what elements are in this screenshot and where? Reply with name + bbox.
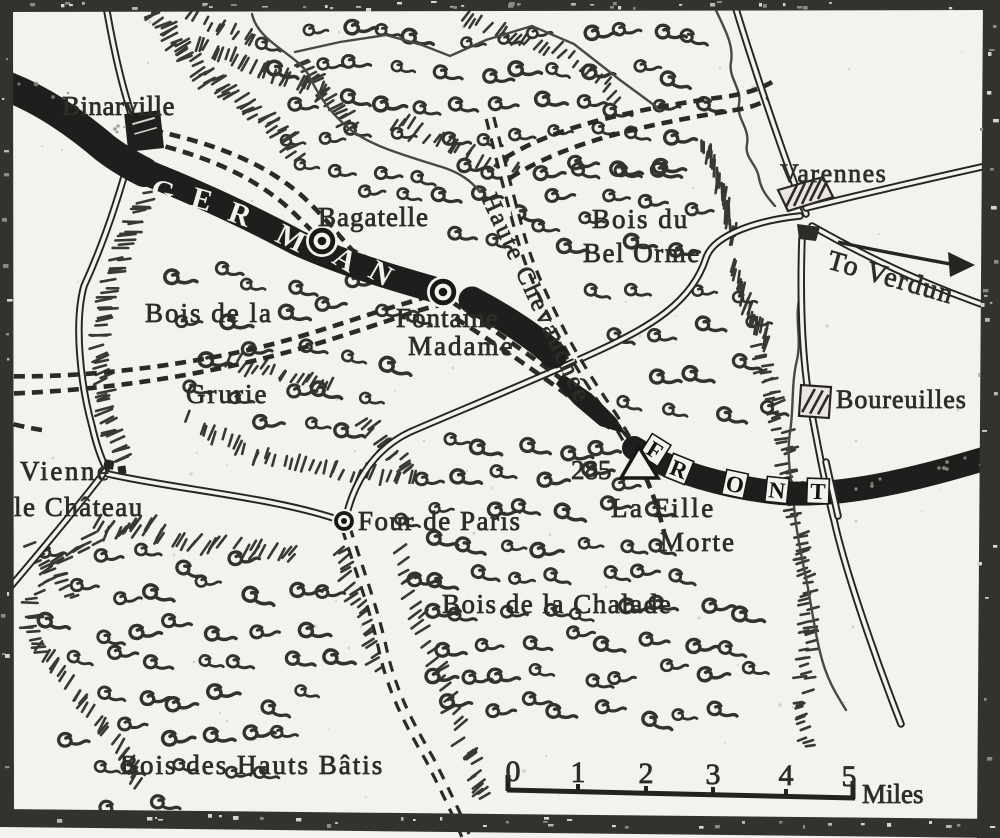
svg-text:Bagatelle: Bagatelle [318,202,429,232]
svg-text:Four de Paris: Four de Paris [358,506,522,536]
svg-text:2: 2 [639,757,654,790]
svg-text:3: 3 [706,758,721,791]
svg-text:285: 285 [571,455,612,485]
svg-text:T: T [810,479,826,505]
svg-text:le Château: le Château [14,492,144,522]
svg-text:Bois de la: Bois de la [145,298,273,328]
svg-text:Bois du: Bois du [592,204,689,234]
svg-text:Varennes: Varennes [780,159,887,188]
svg-text:Binarville: Binarville [62,91,175,121]
svg-text:Miles: Miles [862,779,924,809]
svg-text:Boureuilles: Boureuilles [836,385,967,414]
svg-text:Grurie: Grurie [186,379,268,409]
svg-text:4: 4 [779,759,794,792]
svg-text:Fontaine: Fontaine [396,303,499,333]
svg-text:5: 5 [842,760,857,793]
svg-text:Vienne: Vienne [20,456,111,486]
svg-text:Bois de la Chalade: Bois de la Chalade [442,589,672,619]
svg-text:Bois des Hauts Bâtis: Bois des Hauts Bâtis [120,750,384,780]
svg-text:Bel Orme: Bel Orme [583,238,701,268]
svg-text:La Fille: La Fille [611,493,716,523]
svg-text:N: N [767,477,787,504]
svg-text:Madame: Madame [408,331,514,361]
svg-text:0: 0 [506,755,521,788]
svg-text:1: 1 [571,756,586,789]
svg-text:Morte: Morte [660,527,736,557]
